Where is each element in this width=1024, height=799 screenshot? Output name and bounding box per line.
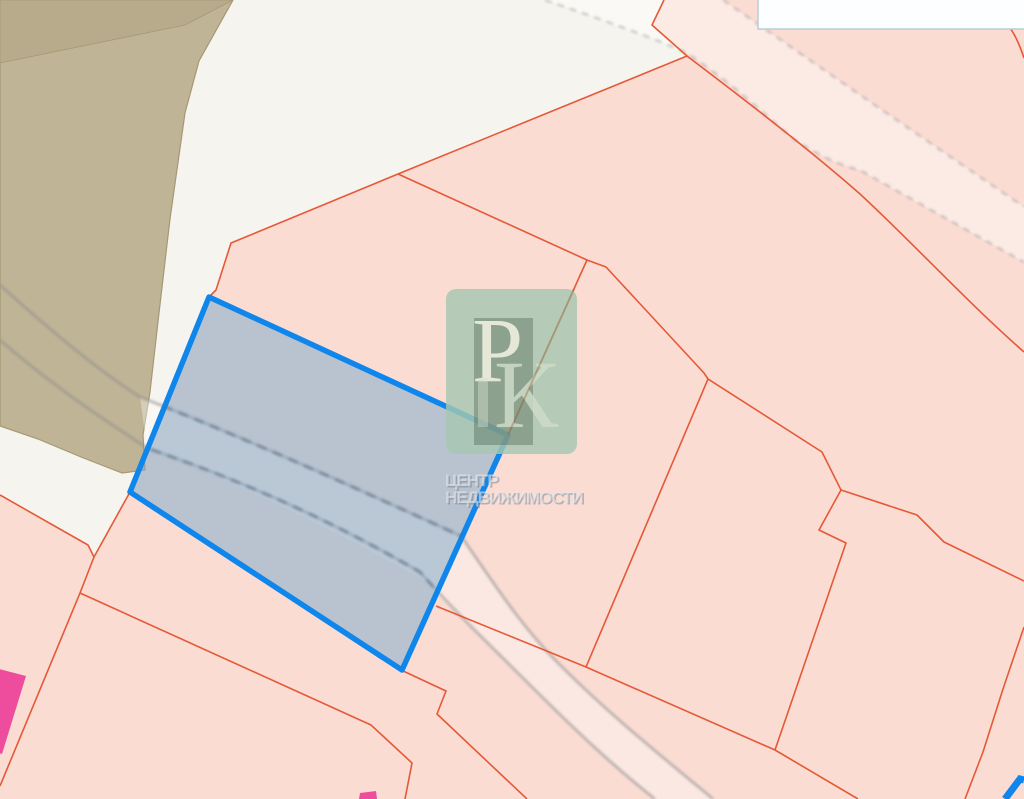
svg-text:НЕДВИЖИМОСТИ: НЕДВИЖИМОСТИ [445, 488, 583, 507]
